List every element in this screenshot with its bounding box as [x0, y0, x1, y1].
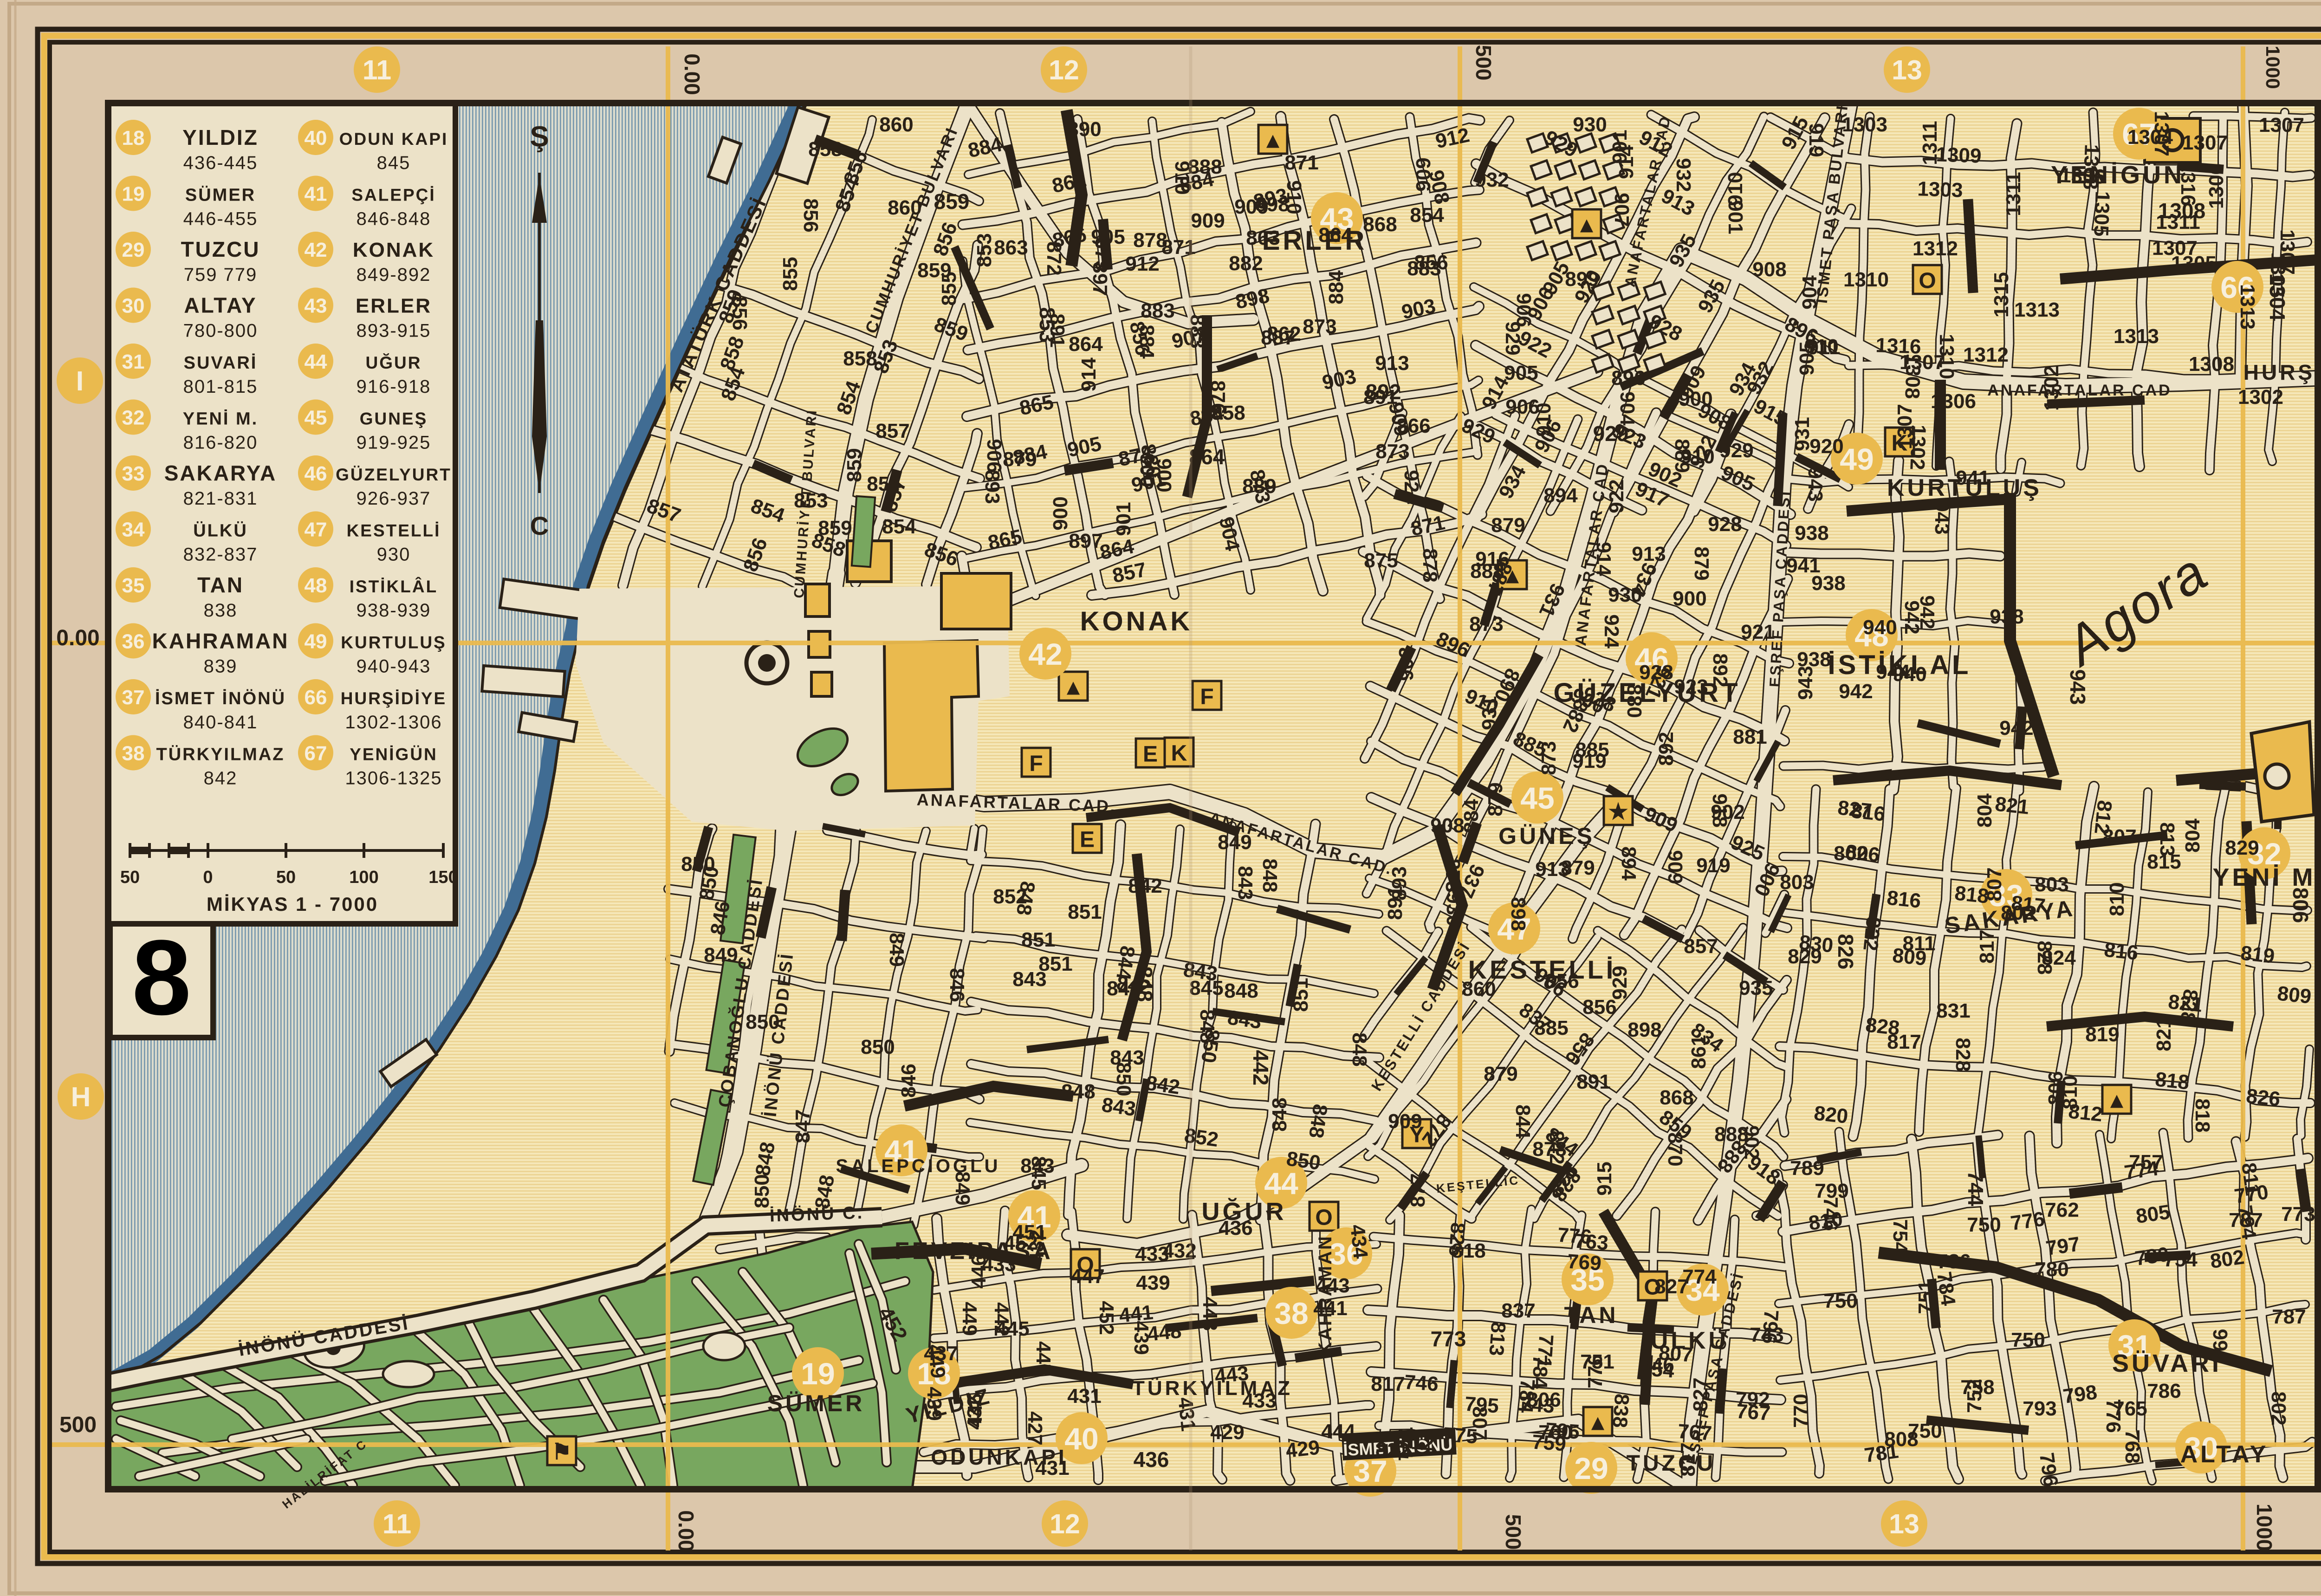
- svg-text:787: 787: [2229, 1209, 2263, 1232]
- svg-text:⚑: ⚑: [551, 1440, 571, 1465]
- svg-text:840-841: 840-841: [183, 712, 258, 733]
- svg-text:13: 13: [1889, 1509, 1919, 1539]
- svg-text:851: 851: [1068, 901, 1102, 923]
- svg-text:44: 44: [1264, 1166, 1298, 1200]
- svg-text:848: 848: [1268, 1097, 1291, 1131]
- svg-text:ISTİKLÂL: ISTİKLÂL: [350, 577, 438, 596]
- svg-text:844: 844: [1511, 1104, 1534, 1139]
- svg-text:930: 930: [377, 545, 411, 565]
- svg-text:500: 500: [1501, 1514, 1525, 1550]
- svg-text:820: 820: [1813, 1102, 1849, 1128]
- svg-text:908: 908: [1430, 814, 1464, 837]
- svg-text:879: 879: [1484, 782, 1507, 816]
- svg-text:1313: 1313: [2236, 284, 2259, 330]
- svg-text:444: 444: [1321, 1420, 1355, 1443]
- svg-text:852: 852: [1183, 1124, 1220, 1151]
- svg-text:873: 873: [1303, 315, 1336, 338]
- svg-text:905: 905: [1504, 362, 1538, 384]
- svg-text:868: 868: [1363, 213, 1397, 236]
- svg-text:427: 427: [1024, 1411, 1046, 1445]
- svg-text:33: 33: [122, 462, 145, 485]
- svg-text:881: 881: [1733, 726, 1767, 748]
- svg-text:47: 47: [305, 518, 327, 541]
- svg-text:TAN: TAN: [197, 573, 244, 597]
- svg-text:903: 903: [1395, 647, 1418, 681]
- svg-text:922: 922: [1605, 479, 1628, 513]
- svg-text:KURTULUŞ: KURTULUŞ: [341, 633, 446, 652]
- svg-text:776: 776: [2102, 1399, 2125, 1433]
- svg-text:1311: 1311: [2002, 172, 2025, 216]
- svg-text:▲: ▲: [1062, 675, 1084, 700]
- svg-text:860: 860: [1462, 978, 1496, 1000]
- svg-text:774: 774: [2123, 1157, 2160, 1184]
- svg-text:888: 888: [1714, 1123, 1748, 1146]
- svg-text:1310: 1310: [1843, 268, 1889, 291]
- svg-text:861: 861: [1687, 1035, 1710, 1069]
- svg-text:816: 816: [1886, 886, 1922, 912]
- svg-text:802: 802: [2267, 1391, 2290, 1425]
- svg-text:YENİ M.: YENİ M.: [183, 409, 258, 429]
- svg-text:780-800: 780-800: [183, 321, 258, 341]
- svg-text:804: 804: [1973, 793, 1996, 828]
- svg-text:858: 858: [808, 138, 842, 161]
- svg-text:838: 838: [204, 600, 238, 621]
- svg-text:821-831: 821-831: [183, 488, 258, 509]
- svg-text:892: 892: [1655, 732, 1678, 766]
- svg-text:943: 943: [2066, 669, 2090, 705]
- svg-text:898: 898: [1627, 1019, 1661, 1041]
- svg-text:797: 797: [2044, 1233, 2081, 1260]
- svg-text:900: 900: [1673, 587, 1706, 610]
- svg-text:751: 751: [1914, 1280, 1937, 1314]
- svg-text:851: 851: [1290, 978, 1312, 1012]
- svg-text:906: 906: [1512, 293, 1535, 327]
- svg-text:909: 909: [1191, 209, 1225, 232]
- svg-text:1306: 1306: [2205, 163, 2228, 209]
- svg-text:921: 921: [1741, 621, 1775, 643]
- svg-text:923: 923: [1674, 675, 1708, 698]
- svg-text:892: 892: [1366, 380, 1401, 404]
- svg-text:938: 938: [1990, 605, 2023, 628]
- svg-text:KAHRAMAN: KAHRAMAN: [152, 629, 289, 653]
- svg-text:746: 746: [1819, 1197, 1842, 1231]
- svg-text:40: 40: [1064, 1421, 1098, 1456]
- svg-text:812: 812: [2090, 799, 2116, 835]
- svg-text:849: 849: [1218, 831, 1251, 854]
- svg-text:846-848: 846-848: [357, 209, 431, 229]
- svg-text:850: 850: [861, 1036, 895, 1058]
- svg-text:853: 853: [794, 489, 828, 512]
- svg-text:49: 49: [1840, 442, 1874, 476]
- svg-text:896: 896: [1611, 367, 1645, 389]
- svg-text:46: 46: [305, 462, 327, 485]
- svg-text:445: 445: [995, 1317, 1029, 1340]
- svg-text:809: 809: [2276, 982, 2312, 1008]
- svg-text:F: F: [1029, 752, 1043, 776]
- svg-text:0.00: 0.00: [56, 626, 99, 650]
- svg-text:1305: 1305: [2089, 191, 2114, 237]
- svg-text:66: 66: [305, 686, 327, 709]
- svg-text:819: 819: [2085, 1023, 2119, 1046]
- svg-text:899: 899: [1565, 268, 1599, 291]
- svg-text:822: 822: [1859, 915, 1885, 952]
- svg-text:919: 919: [1572, 750, 1606, 772]
- svg-text:910: 910: [1804, 335, 1838, 358]
- svg-text:803: 803: [1780, 871, 1814, 894]
- svg-text:446: 446: [967, 1254, 990, 1288]
- svg-text:13: 13: [1892, 55, 1922, 85]
- svg-text:849-892: 849-892: [357, 265, 431, 285]
- svg-text:842: 842: [1144, 1071, 1181, 1099]
- svg-text:750: 750: [1967, 1213, 2001, 1236]
- svg-text:850: 850: [751, 1174, 773, 1208]
- svg-text:SÜVARI: SÜVARI: [2112, 1349, 2222, 1377]
- svg-text:931: 931: [1478, 696, 1501, 730]
- svg-text:809: 809: [1891, 944, 1927, 970]
- svg-text:K: K: [1171, 741, 1187, 766]
- svg-text:40: 40: [305, 127, 327, 149]
- svg-text:943: 943: [1794, 666, 1817, 700]
- svg-text:805: 805: [2134, 1200, 2172, 1228]
- svg-text:HURŞİDİYE: HURŞİDİYE: [341, 689, 447, 708]
- svg-text:808: 808: [1884, 1428, 1918, 1451]
- svg-text:750: 750: [1823, 1290, 1857, 1312]
- svg-text:848: 848: [1061, 1080, 1095, 1103]
- svg-text:ÜLKÜ: ÜLKÜ: [193, 521, 248, 541]
- svg-text:433: 433: [1242, 1389, 1276, 1412]
- svg-text:500: 500: [59, 1413, 97, 1437]
- svg-text:37: 37: [122, 686, 145, 709]
- svg-text:932: 932: [1672, 158, 1695, 192]
- svg-text:940: 940: [1863, 616, 1897, 639]
- svg-text:941: 941: [1956, 467, 1990, 489]
- svg-text:38: 38: [122, 742, 145, 765]
- svg-text:1311: 1311: [1919, 121, 1941, 165]
- svg-text:806: 806: [2044, 1071, 2067, 1105]
- svg-text:SÜMER: SÜMER: [185, 185, 256, 205]
- svg-text:1305: 1305: [2171, 252, 2217, 275]
- svg-text:1302: 1302: [2238, 386, 2283, 409]
- svg-text:919-925: 919-925: [357, 433, 431, 453]
- svg-text:859: 859: [818, 517, 852, 539]
- svg-text:19: 19: [122, 182, 145, 205]
- svg-text:762: 762: [2045, 1199, 2079, 1221]
- svg-text:436: 436: [1134, 1447, 1169, 1472]
- svg-text:859: 859: [934, 189, 970, 214]
- svg-text:919: 919: [1696, 854, 1730, 877]
- svg-text:888: 888: [1470, 560, 1504, 583]
- svg-text:878: 878: [1419, 548, 1441, 582]
- svg-text:1309: 1309: [1936, 143, 1982, 167]
- svg-text:842: 842: [204, 768, 238, 789]
- svg-text:941: 941: [1786, 554, 1820, 577]
- svg-text:759 779: 759 779: [184, 265, 258, 285]
- svg-text:F: F: [1200, 685, 1213, 709]
- svg-text:SAKARYA: SAKARYA: [164, 461, 277, 485]
- svg-text:898: 898: [1507, 897, 1530, 931]
- svg-text:TUZCU: TUZCU: [1627, 1451, 1716, 1476]
- svg-text:873: 873: [1375, 440, 1409, 463]
- svg-text:863: 863: [994, 236, 1028, 259]
- svg-text:452: 452: [1004, 1232, 1037, 1254]
- svg-text:943: 943: [1804, 467, 1827, 501]
- svg-text:883: 883: [1141, 299, 1174, 322]
- svg-text:906: 906: [1505, 396, 1539, 418]
- svg-text:806: 806: [2289, 888, 2313, 923]
- svg-text:893: 893: [981, 470, 1004, 504]
- svg-text:ODUN KAPI: ODUN KAPI: [339, 130, 448, 149]
- svg-text:940-943: 940-943: [357, 656, 431, 677]
- svg-text:431: 431: [1067, 1385, 1101, 1408]
- svg-text:864: 864: [1189, 445, 1225, 469]
- svg-text:0.00: 0.00: [674, 1510, 698, 1552]
- svg-text:30: 30: [122, 294, 145, 317]
- svg-text:938: 938: [1795, 522, 1828, 545]
- svg-text:1306-1325: 1306-1325: [345, 768, 442, 789]
- svg-text:1000: 1000: [2252, 1504, 2276, 1551]
- svg-text:HURŞİDİYE: HURŞİDİYE: [2243, 360, 2321, 384]
- svg-text:48: 48: [305, 574, 327, 597]
- svg-text:32: 32: [122, 406, 145, 429]
- svg-text:787: 787: [2272, 1305, 2306, 1328]
- svg-text:892: 892: [1709, 653, 1731, 687]
- svg-text:803: 803: [2035, 873, 2068, 896]
- svg-text:846: 846: [897, 1064, 920, 1097]
- svg-text:18: 18: [122, 127, 145, 149]
- svg-text:67: 67: [305, 742, 327, 765]
- svg-text:452: 452: [1095, 1301, 1118, 1335]
- svg-text:766: 766: [2209, 1329, 2232, 1362]
- svg-text:894: 894: [1543, 484, 1578, 507]
- svg-text:1312: 1312: [1913, 237, 1958, 260]
- svg-text:843: 843: [1020, 1155, 1054, 1177]
- svg-text:446-455: 446-455: [183, 209, 258, 229]
- svg-text:913: 913: [1375, 352, 1409, 375]
- svg-text:12: 12: [1049, 55, 1079, 85]
- svg-text:SALEPÇİ: SALEPÇİ: [351, 186, 435, 205]
- svg-text:780: 780: [2133, 1243, 2171, 1270]
- svg-text:928: 928: [1639, 661, 1673, 684]
- svg-text:810: 810: [2106, 882, 2128, 916]
- svg-text:1307: 1307: [2259, 114, 2304, 136]
- svg-text:816: 816: [2103, 938, 2139, 964]
- svg-text:ALTAY: ALTAY: [2180, 1441, 2269, 1468]
- svg-text:▲: ▲: [1575, 213, 1598, 238]
- svg-text:853: 853: [973, 233, 996, 267]
- svg-text:864: 864: [1318, 224, 1353, 247]
- svg-text:860: 860: [879, 113, 913, 136]
- svg-text:431: 431: [1035, 1457, 1069, 1479]
- svg-text:854: 854: [882, 515, 916, 538]
- svg-text:885: 885: [1534, 1017, 1568, 1039]
- svg-text:0: 0: [203, 868, 213, 887]
- svg-text:848: 848: [1196, 1009, 1219, 1043]
- svg-text:801-815: 801-815: [183, 376, 258, 397]
- svg-text:C: C: [530, 511, 549, 540]
- svg-text:837: 837: [1501, 1299, 1535, 1322]
- svg-text:942: 942: [1839, 680, 1873, 703]
- svg-text:GUNEŞ: GUNEŞ: [360, 409, 428, 428]
- svg-text:443: 443: [1316, 1274, 1349, 1297]
- svg-text:914: 914: [1615, 145, 1638, 179]
- svg-text:855: 855: [938, 272, 960, 305]
- svg-text:848: 848: [1133, 967, 1157, 1002]
- svg-text:439: 439: [923, 1387, 946, 1421]
- svg-text:929: 929: [1719, 439, 1753, 462]
- svg-text:879: 879: [1091, 237, 1114, 271]
- svg-text:439: 439: [1136, 1272, 1170, 1294]
- svg-text:879: 879: [1491, 514, 1525, 537]
- svg-text:442: 442: [1249, 1050, 1273, 1086]
- svg-text:O: O: [1315, 1206, 1332, 1230]
- svg-text:776: 776: [2009, 1207, 2046, 1235]
- svg-text:1306: 1306: [2060, 164, 2106, 188]
- svg-text:0.00: 0.00: [680, 53, 704, 95]
- svg-text:754: 754: [1889, 1219, 1912, 1253]
- svg-text:806: 806: [1844, 840, 1880, 866]
- svg-text:793: 793: [2023, 1397, 2056, 1420]
- svg-text:798: 798: [2062, 1381, 2099, 1408]
- svg-text:818: 818: [1452, 1239, 1485, 1262]
- svg-text:11: 11: [363, 55, 391, 85]
- svg-text:853: 853: [1035, 307, 1059, 343]
- svg-text:43: 43: [305, 294, 327, 317]
- svg-text:▲: ▲: [2106, 1089, 2128, 1113]
- svg-text:904: 904: [1798, 275, 1821, 310]
- svg-text:19: 19: [801, 1356, 835, 1391]
- svg-text:817: 817: [1976, 929, 1998, 963]
- svg-text:784: 784: [1932, 1270, 1960, 1307]
- svg-text:858: 858: [843, 347, 877, 370]
- svg-text:932: 932: [1475, 169, 1509, 191]
- svg-text:UĞUR: UĞUR: [366, 353, 422, 372]
- svg-text:866: 866: [1396, 415, 1430, 437]
- svg-text:816: 816: [1850, 799, 1886, 825]
- svg-text:839: 839: [204, 656, 238, 677]
- svg-text:913: 913: [1632, 543, 1666, 565]
- svg-text:436-445: 436-445: [183, 153, 258, 173]
- svg-text:812: 812: [2067, 1100, 2103, 1126]
- svg-text:743: 743: [1520, 1393, 1556, 1418]
- svg-text:916-918: 916-918: [357, 376, 431, 397]
- svg-text:909: 909: [1412, 157, 1435, 191]
- svg-text:751: 751: [1580, 1350, 1614, 1373]
- svg-text:914: 914: [1077, 357, 1100, 392]
- svg-text:818: 818: [2154, 1068, 2190, 1094]
- svg-text:821: 821: [2152, 1017, 2175, 1051]
- svg-text:819: 819: [2239, 941, 2276, 967]
- svg-text:919: 919: [1805, 123, 1828, 157]
- svg-text:150: 150: [428, 868, 458, 887]
- svg-text:930: 930: [1442, 892, 1465, 926]
- svg-text:848: 848: [1224, 980, 1258, 1002]
- svg-text:822: 822: [1375, 1438, 1411, 1463]
- svg-text:50: 50: [120, 868, 140, 887]
- svg-text:38: 38: [1274, 1296, 1308, 1330]
- svg-text:817: 817: [1677, 1442, 1699, 1476]
- svg-text:768: 768: [2121, 1429, 2144, 1463]
- svg-text:879: 879: [1561, 856, 1595, 879]
- svg-text:1307: 1307: [2182, 131, 2228, 154]
- svg-text:857: 857: [875, 420, 909, 442]
- svg-text:915: 915: [1593, 1161, 1616, 1195]
- svg-text:842: 842: [1545, 1130, 1568, 1164]
- svg-text:ERLER: ERLER: [356, 295, 432, 318]
- svg-text:827: 827: [1654, 1275, 1688, 1298]
- svg-text:447: 447: [1032, 1341, 1055, 1375]
- svg-text:901: 901: [1112, 502, 1135, 536]
- svg-text:817: 817: [2010, 891, 2046, 917]
- svg-text:884: 884: [1135, 324, 1158, 359]
- svg-text:856: 856: [1414, 251, 1448, 274]
- svg-text:29: 29: [1574, 1451, 1608, 1486]
- svg-text:868: 868: [1660, 1086, 1693, 1109]
- svg-text:884: 884: [1325, 270, 1348, 305]
- svg-text:807: 807: [1468, 1406, 1491, 1440]
- svg-text:1303: 1303: [1917, 177, 1964, 201]
- svg-text:831: 831: [1936, 999, 1970, 1022]
- svg-text:773: 773: [1431, 1327, 1466, 1351]
- svg-text:940: 940: [1893, 663, 1926, 686]
- svg-text:877: 877: [1407, 1173, 1429, 1207]
- svg-text:45: 45: [1520, 781, 1554, 815]
- svg-text:34: 34: [122, 518, 145, 541]
- svg-text:817: 817: [1371, 1373, 1405, 1395]
- svg-text:443: 443: [1213, 1362, 1250, 1388]
- svg-text:1304: 1304: [2265, 273, 2289, 321]
- svg-text:1303: 1303: [1842, 113, 1887, 136]
- svg-text:50: 50: [276, 868, 296, 887]
- svg-text:433: 433: [1135, 1243, 1169, 1265]
- svg-text:ANAFARTALAR CAD: ANAFARTALAR CAD: [1987, 382, 2172, 399]
- svg-text:827: 827: [1689, 1377, 1712, 1411]
- svg-text:SÜMER: SÜMER: [767, 1390, 865, 1416]
- svg-text:832-837: 832-837: [183, 545, 258, 565]
- svg-text:SALEPCIOGLU: SALEPCIOGLU: [836, 1156, 1001, 1176]
- svg-text:942: 942: [1900, 600, 1923, 634]
- svg-text:E: E: [1080, 828, 1095, 852]
- svg-text:▲: ▲: [1262, 129, 1284, 153]
- svg-text:759: 759: [1531, 1431, 1567, 1456]
- svg-text:802: 802: [2209, 1246, 2246, 1273]
- svg-text:852: 852: [993, 885, 1027, 908]
- svg-text:828: 828: [1951, 1038, 1974, 1071]
- svg-text:813: 813: [2156, 822, 2178, 856]
- svg-text:943: 943: [1931, 500, 1953, 534]
- svg-text:873: 873: [1469, 613, 1503, 636]
- svg-text:864: 864: [1069, 333, 1103, 356]
- svg-text:42: 42: [305, 239, 327, 261]
- svg-text:856: 856: [728, 296, 751, 330]
- svg-text:I: I: [76, 366, 84, 396]
- svg-text:767: 767: [1736, 1400, 1771, 1425]
- svg-text:796: 796: [1757, 1309, 1783, 1345]
- svg-text:929: 929: [1608, 966, 1631, 999]
- svg-text:500: 500: [1472, 45, 1496, 81]
- svg-text:849: 849: [704, 944, 738, 967]
- svg-text:850: 850: [746, 1011, 779, 1033]
- svg-text:436: 436: [1219, 1217, 1252, 1239]
- svg-text:45: 45: [305, 406, 327, 429]
- svg-text:1000: 1000: [2262, 45, 2284, 89]
- svg-text:876: 876: [1206, 380, 1229, 414]
- svg-text:TUZCU: TUZCU: [181, 237, 260, 261]
- svg-text:843: 843: [1226, 1006, 1263, 1033]
- svg-text:930: 930: [1573, 113, 1607, 136]
- svg-text:41: 41: [305, 182, 327, 205]
- svg-text:817: 817: [1887, 1031, 1921, 1053]
- svg-text:826: 826: [2245, 1084, 2281, 1110]
